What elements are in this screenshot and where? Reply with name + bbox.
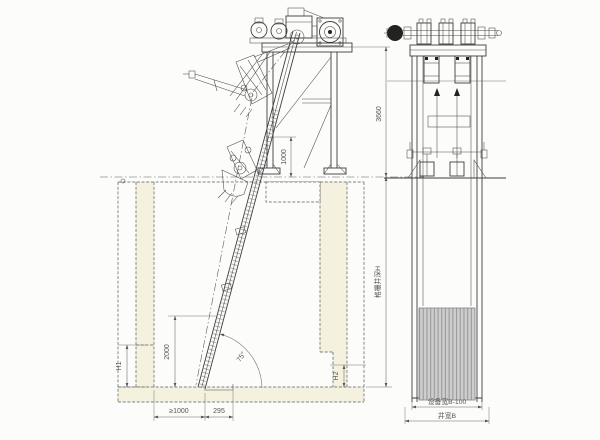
diagonal-brace — [304, 105, 331, 168]
bearing-unit — [461, 19, 475, 44]
rake-carriage-upper — [183, 44, 290, 117]
motor — [286, 16, 312, 38]
inclined-screen — [196, 30, 304, 390]
right-wall-step — [320, 352, 333, 387]
head-sprocket — [290, 30, 304, 44]
left-wall — [136, 182, 154, 387]
platform — [262, 43, 352, 52]
head-shaft-assembly — [384, 19, 502, 44]
coupling — [312, 26, 317, 36]
dim-discharge-clearance: 1000 — [281, 149, 288, 165]
anchor-assembly — [407, 142, 487, 178]
gusset — [474, 160, 486, 178]
drive-sheave — [387, 25, 403, 41]
floor-slab — [118, 387, 364, 402]
terminal-box — [288, 8, 304, 16]
bar-rack — [419, 308, 475, 400]
reference-mark — [121, 179, 125, 183]
dim-frame-height: 3660 — [376, 106, 383, 122]
dim-floor-clearance: ≥1000 — [169, 408, 189, 415]
lifting-chains — [434, 88, 460, 158]
dim-rake-travel: 2000 — [164, 344, 171, 360]
dim-equipment-width: 设备宽B-100 — [428, 397, 467, 406]
front-view: 设备宽B-100 井宽B — [384, 19, 506, 424]
side-view: 3660 格栅井深H 1000 2000 75° H1 H2 ≥1000 — [100, 8, 424, 421]
chain-sprocket — [251, 22, 267, 38]
grab-bucket — [222, 170, 248, 196]
dim-pit-depth: 格栅井深H — [373, 266, 382, 298]
chain-sprocket — [271, 23, 287, 39]
hanger-bracket — [424, 56, 439, 83]
arm-bolt — [189, 71, 195, 78]
bar-screen-drawing: 3660 格栅井深H 1000 2000 75° H1 H2 ≥1000 — [0, 0, 600, 440]
dimensions-front: 设备宽B-100 井宽B — [405, 397, 489, 424]
hanger-bracket — [455, 56, 470, 83]
dim-h1: H1 — [116, 361, 123, 370]
dim-incline-angle: 75° — [235, 350, 248, 363]
engineering-drawing: 3660 格栅井深H 1000 2000 75° H1 H2 ≥1000 — [0, 0, 600, 440]
gusset — [408, 160, 420, 178]
bearing-unit — [439, 19, 453, 44]
dim-screen-foot: 295 — [213, 408, 225, 415]
dim-channel-width: 井宽B — [438, 411, 457, 420]
cover-slab-edge — [266, 182, 320, 202]
bearing-unit — [417, 19, 431, 44]
tie-beam — [428, 116, 470, 127]
top-beam — [410, 45, 486, 56]
grab-body-lower — [227, 140, 257, 179]
dim-h2: H2 — [333, 371, 340, 380]
